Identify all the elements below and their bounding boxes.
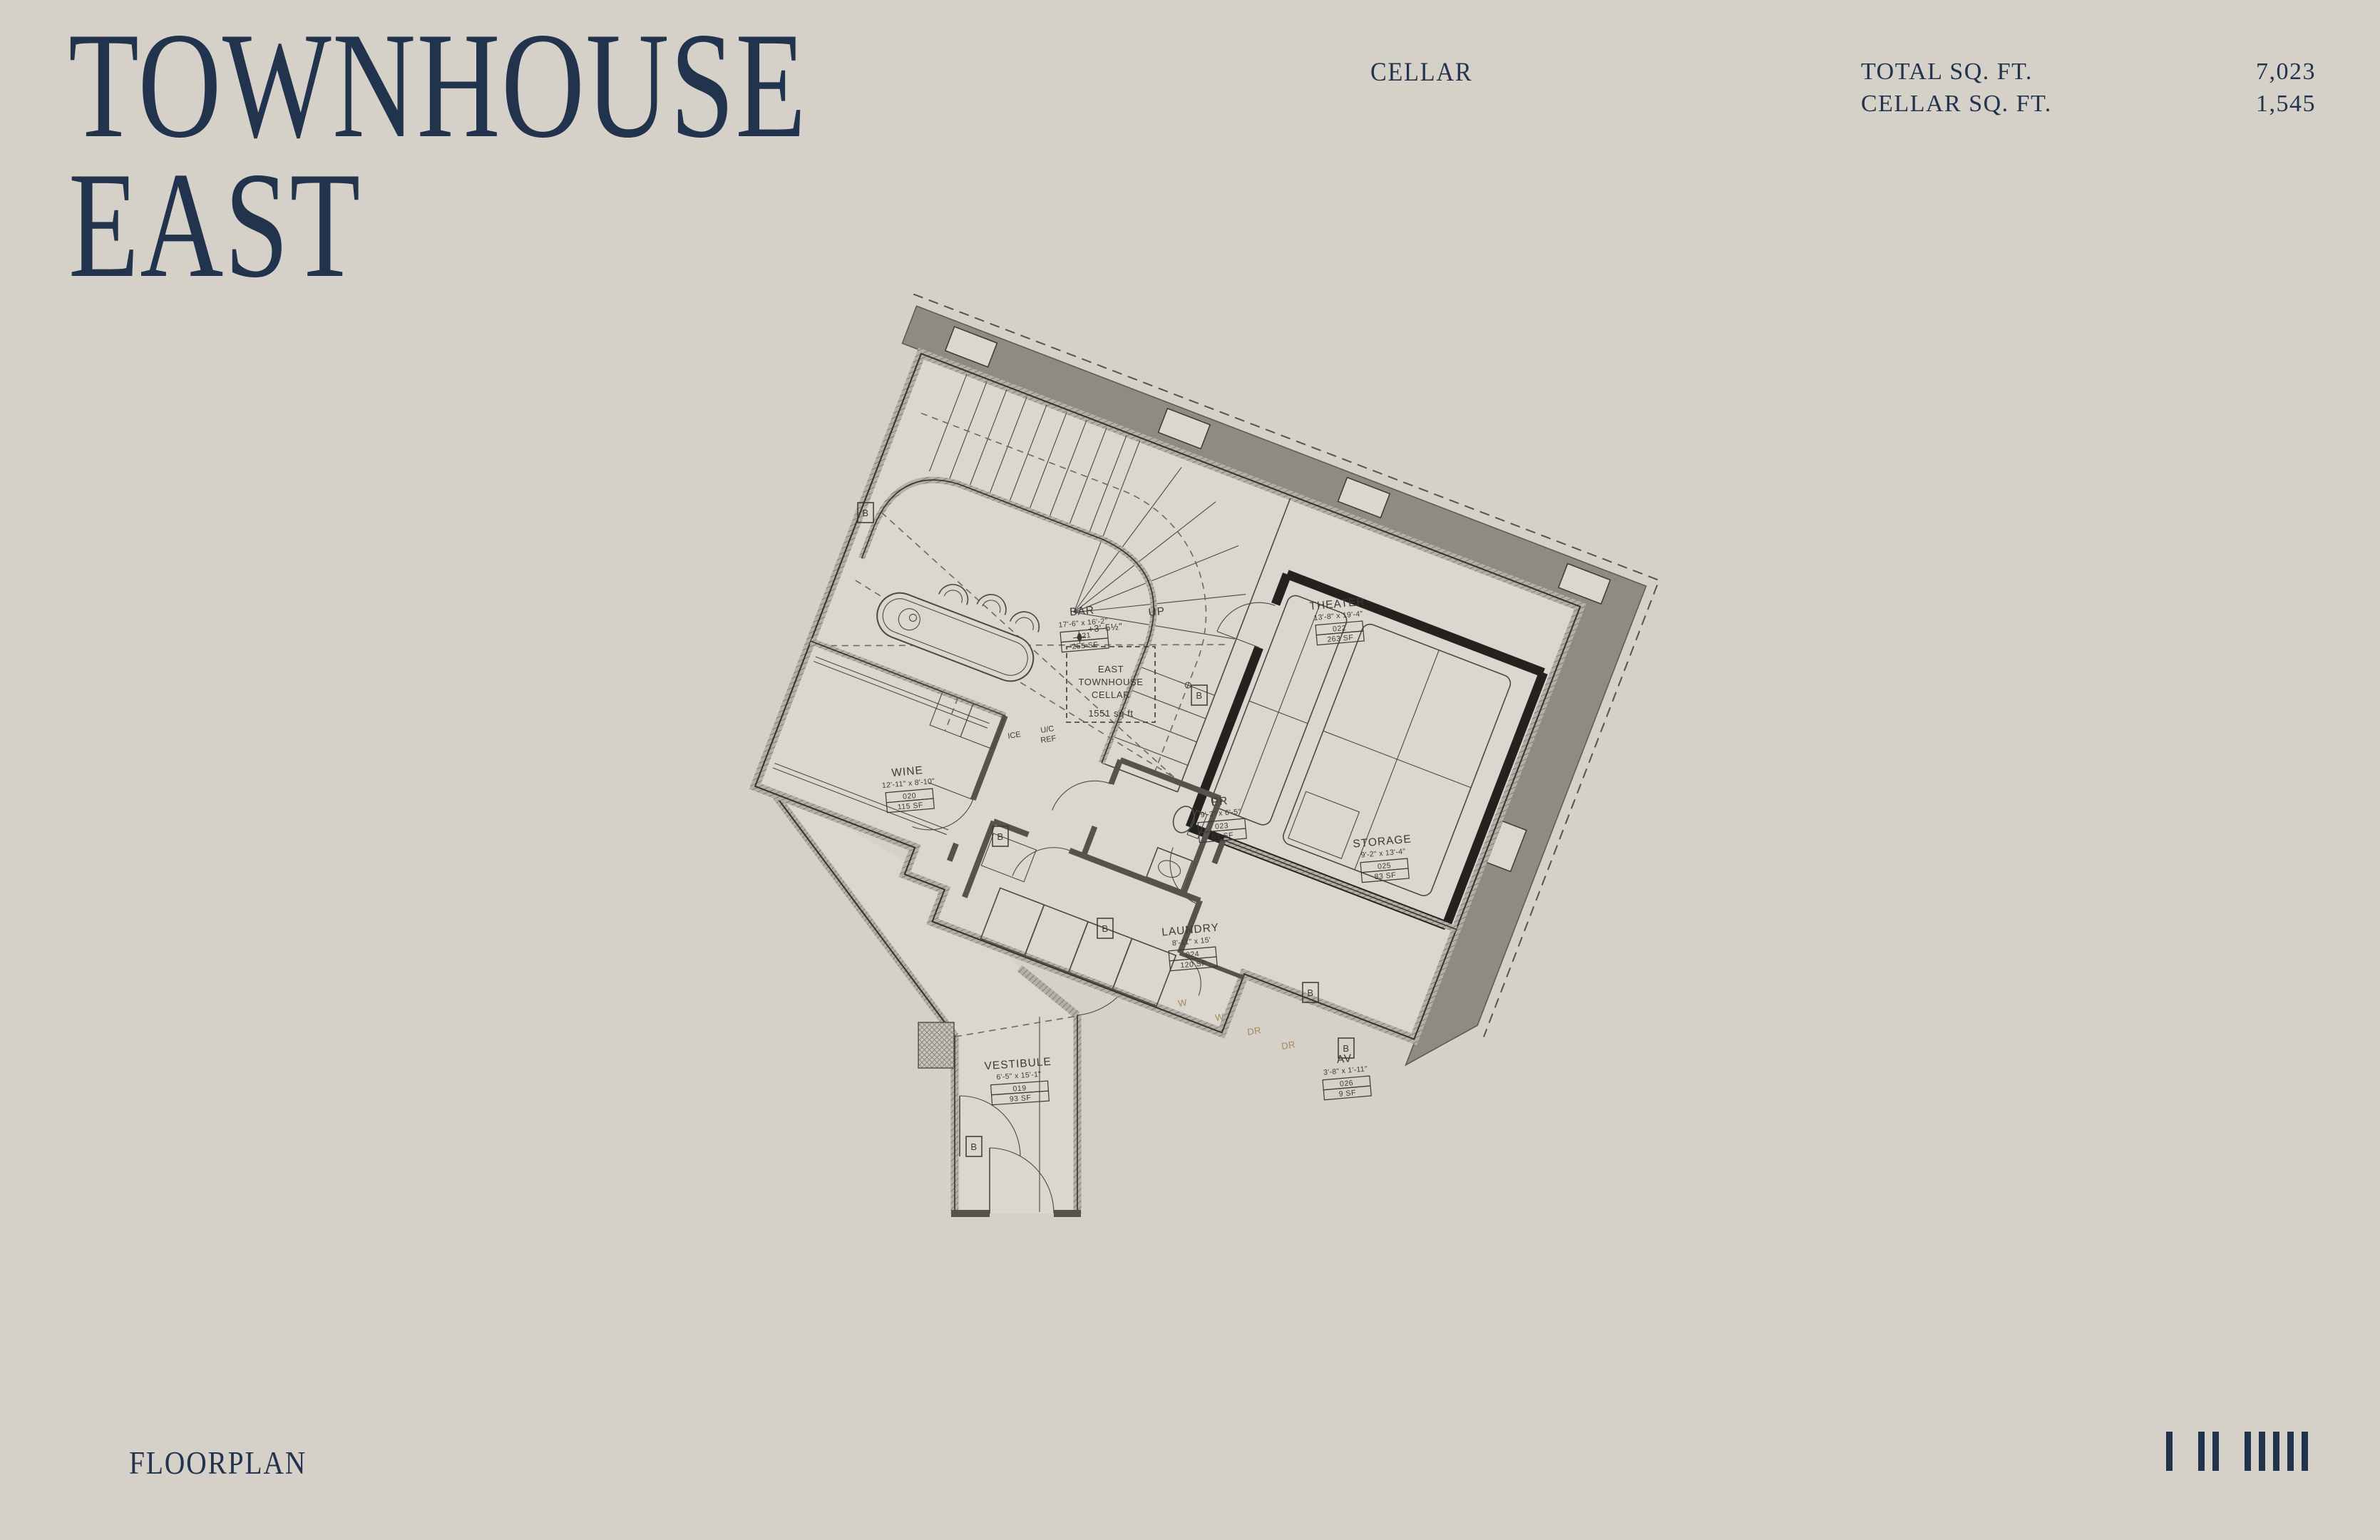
svg-text:3'-8" x 1'-11": 3'-8" x 1'-11" bbox=[1323, 1064, 1368, 1077]
floor-tick-group bbox=[2198, 1432, 2219, 1472]
svg-text:026: 026 bbox=[1340, 1079, 1354, 1089]
stat-label: CELLAR SQ. FT. bbox=[1861, 88, 2052, 120]
stat-value: 1,545 bbox=[2256, 88, 2316, 120]
svg-text:B: B bbox=[1196, 690, 1202, 701]
page-title-line2: EAST bbox=[68, 155, 807, 295]
footer-floorplan-label: FLOORPLAN bbox=[129, 1444, 307, 1482]
stair-up-label: UP bbox=[1148, 605, 1166, 619]
svg-text:B: B bbox=[1102, 923, 1108, 934]
floor-tick-bar bbox=[2287, 1432, 2294, 1471]
svg-text:B: B bbox=[1343, 1043, 1349, 1054]
svg-text:025: 025 bbox=[1378, 861, 1392, 871]
floor-tick-bar bbox=[2245, 1432, 2251, 1471]
main-block bbox=[747, 294, 1659, 1121]
svg-text:019: 019 bbox=[1012, 1084, 1027, 1093]
floor-tick-bar bbox=[2273, 1432, 2279, 1471]
svg-text:PR: PR bbox=[1211, 795, 1229, 808]
svg-text:B: B bbox=[862, 508, 868, 518]
floor-tick-bar bbox=[2166, 1432, 2173, 1471]
svg-text:021: 021 bbox=[1077, 631, 1092, 641]
washer-label: W bbox=[1214, 1011, 1225, 1023]
svg-text:020: 020 bbox=[903, 791, 917, 801]
stat-value: 7,023 bbox=[2256, 56, 2316, 88]
floor-tick-group bbox=[2166, 1432, 2173, 1472]
stat-row-total: TOTAL SQ. FT. 7,023 bbox=[1861, 56, 2316, 88]
stat-row-cellar: CELLAR SQ. FT. 1,545 bbox=[1861, 88, 2316, 120]
page-title-line1: TOWNHOUSE bbox=[68, 16, 807, 155]
floor-tick-bar bbox=[2198, 1432, 2205, 1471]
svg-text:93 SF: 93 SF bbox=[1009, 1094, 1031, 1104]
floor-tick-bar bbox=[2259, 1432, 2265, 1471]
svg-text:B: B bbox=[1307, 987, 1313, 998]
svg-text:9 SF: 9 SF bbox=[1338, 1089, 1356, 1099]
washer-label: W bbox=[1177, 997, 1188, 1009]
unit-area-label: 1551 sq ft bbox=[1088, 708, 1133, 719]
sqft-stats: TOTAL SQ. FT. 7,023 CELLAR SQ. FT. 1,545 bbox=[1861, 56, 2316, 120]
floor-tick-group bbox=[2245, 1432, 2308, 1472]
svg-text:023: 023 bbox=[1215, 821, 1229, 831]
dryer-label: DR bbox=[1281, 1039, 1296, 1052]
svg-text:022: 022 bbox=[1333, 624, 1347, 634]
page-title: TOWNHOUSE EAST bbox=[68, 16, 807, 295]
svg-text:BAR: BAR bbox=[1069, 605, 1094, 619]
floor-tick-bar bbox=[2212, 1432, 2219, 1471]
stat-label: TOTAL SQ. FT. bbox=[1861, 56, 2033, 88]
areaway-hatch bbox=[918, 1022, 954, 1068]
svg-text:B: B bbox=[997, 831, 1003, 842]
svg-text:024: 024 bbox=[1186, 950, 1200, 960]
floorplan-page: { "page": {"background": "#d5d0c8", "acc… bbox=[0, 0, 2380, 1540]
cellar-floorplan-drawing: EAST TOWNHOUSE CELLAR 1551 sq ft +3'-5½"… bbox=[747, 294, 1660, 1228]
unit-label-line2: TOWNHOUSE bbox=[1078, 677, 1143, 687]
unit-label-line3: CELLAR bbox=[1092, 689, 1130, 700]
unit-label-line1: EAST bbox=[1098, 664, 1124, 674]
svg-text:B: B bbox=[970, 1141, 977, 1152]
dryer-label: DR bbox=[1246, 1025, 1262, 1037]
floor-level-ticks bbox=[2166, 1432, 2308, 1472]
floor-tick-bar bbox=[2302, 1432, 2308, 1471]
floor-label: CELLAR bbox=[1370, 57, 1472, 88]
